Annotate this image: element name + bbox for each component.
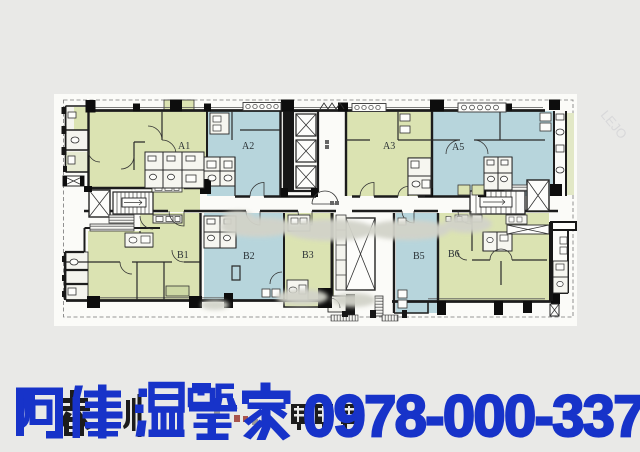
svg-text:A2: A2 <box>242 141 254 152</box>
svg-text:B3: B3 <box>302 250 314 261</box>
svg-text:B5: B5 <box>413 251 425 262</box>
svg-text:B6: B6 <box>448 249 460 260</box>
svg-text:A5: A5 <box>452 142 464 153</box>
svg-text:A1: A1 <box>178 141 190 152</box>
svg-text:0978-000-337: 0978-000-337 <box>303 384 640 449</box>
svg-text:B1: B1 <box>177 250 189 261</box>
svg-text:B2: B2 <box>243 251 255 262</box>
svg-text:A3: A3 <box>383 141 395 152</box>
